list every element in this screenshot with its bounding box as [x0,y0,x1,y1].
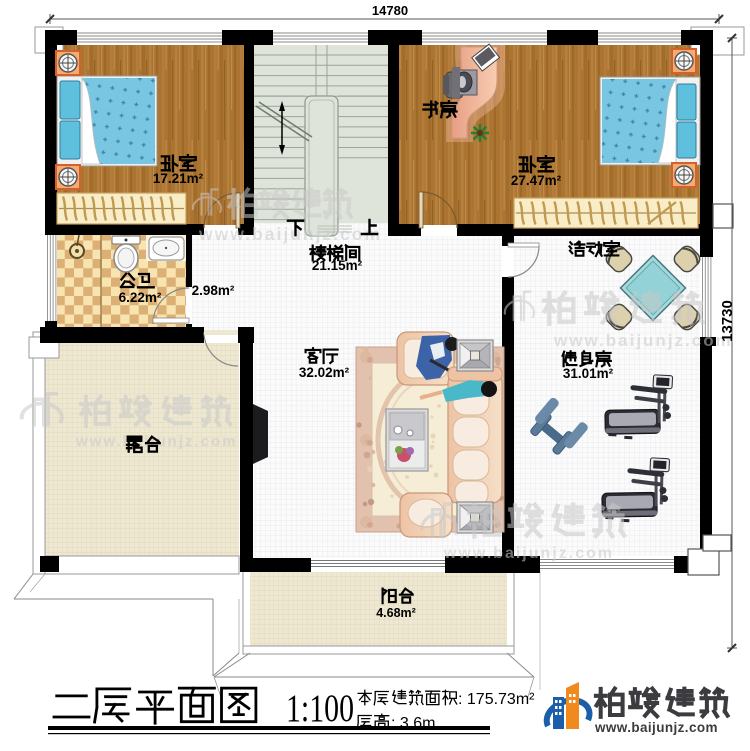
svg-text:1:100: 1:100 [286,687,354,730]
svg-text:www.baijunjz.com: www.baijunjz.com [553,331,733,350]
svg-text:www.baijunjz.com: www.baijunjz.com [443,545,614,562]
svg-text:: 175.73m²: : 175.73m² [458,691,535,708]
svg-text:21.15m²: 21.15m² [312,258,363,273]
svg-text:4.68m²: 4.68m² [376,606,416,620]
svg-text:www.baijunjz.com: www.baijunjz.com [198,224,382,244]
svg-text:: 3.6m: : 3.6m [391,715,435,732]
svg-text:13730: 13730 [719,300,736,342]
svg-text:6.22m²: 6.22m² [119,290,162,305]
svg-text:31.01m²: 31.01m² [563,366,614,381]
svg-text:27.47m²: 27.47m² [511,173,562,188]
svg-text:17.21m²: 17.21m² [153,171,204,186]
svg-text:2.98m²: 2.98m² [192,283,235,298]
svg-text:32.02m²: 32.02m² [299,365,350,380]
svg-text:www.baijunjz.com: www.baijunjz.com [594,720,718,735]
svg-text:14780: 14780 [372,3,408,18]
